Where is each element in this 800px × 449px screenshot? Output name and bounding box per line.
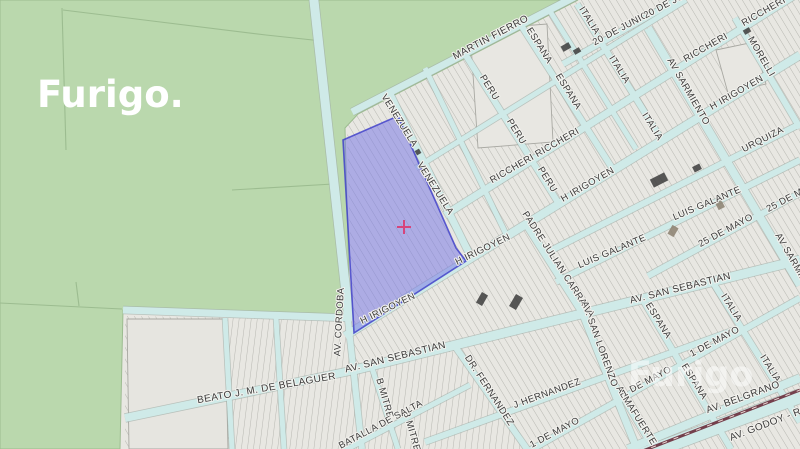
map-canvas[interactable]: MARTIN FIERRO ESPANA PERU ESPANA PERU RI… <box>0 0 800 449</box>
brand-watermark-primary: Furigo. <box>37 73 184 116</box>
map-viewport[interactable]: MARTIN FIERRO ESPANA PERU ESPANA PERU RI… <box>0 0 800 449</box>
brand-watermark-secondary: Furigo <box>628 355 753 395</box>
